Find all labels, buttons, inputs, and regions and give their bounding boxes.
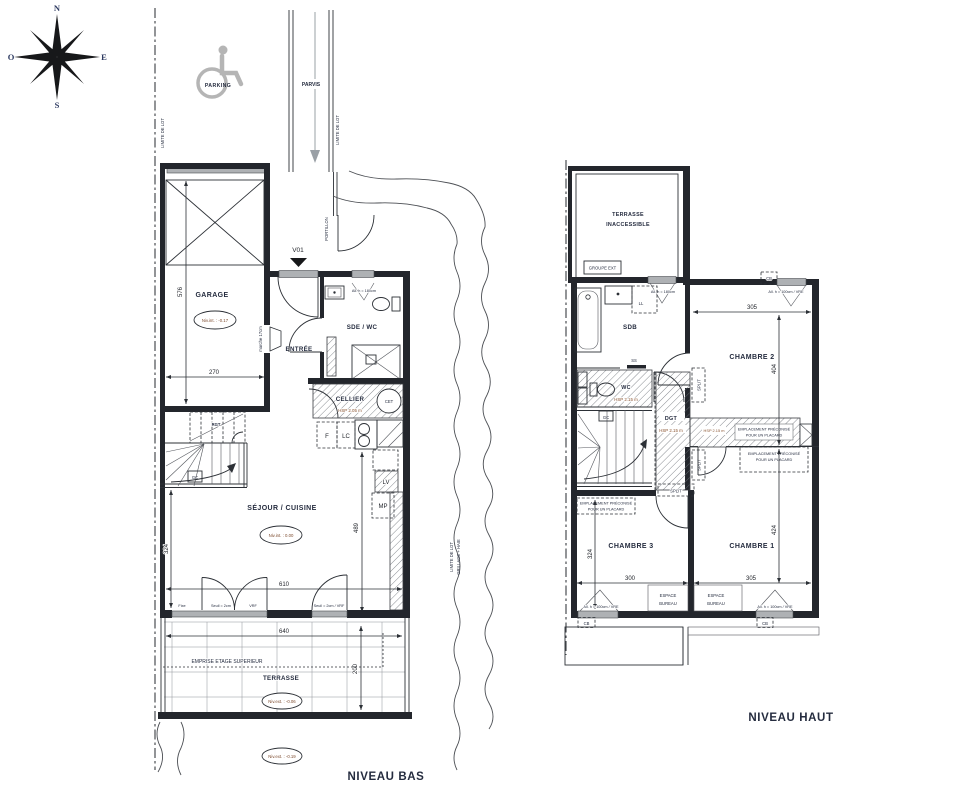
chambre1-window — [756, 611, 793, 618]
chambre3-window-label: All. h = 100cm / VRE — [583, 605, 619, 609]
gc-bas-label: GC — [192, 475, 198, 480]
sejour-room: SÉJOUR / CUISINE Niv.int. : 0.00 324 610 — [164, 490, 402, 608]
lc-label: LC — [342, 434, 350, 440]
water-heater-label: CET — [385, 399, 394, 404]
terrasse-level-label: Niv.ext. : -0.06 — [268, 699, 296, 704]
terrasse-area: 640 200 EMPRISE ETAGE SUPERIEUR TERRASSE… — [158, 618, 412, 719]
entry-area: ENTRÉE — [264, 271, 410, 354]
v01-label: V01 — [292, 247, 304, 254]
chambre1-window-label: All. h = 100cm / VRE — [757, 605, 793, 609]
plan-niveau-bas: GARAGE Niv.int. : -0.17 576 270 marche 1… — [158, 163, 424, 783]
fixe-label: Fixe — [178, 604, 185, 608]
wc-hsp-label: HSP 2.15 m — [614, 397, 638, 402]
marche-label: marche 17cm — [258, 326, 263, 352]
emprise-label: EMPRISE ETAGE SUPERIEUR — [191, 659, 262, 665]
placard-ch1-label-2: POUR UN PLACARD — [756, 458, 793, 462]
cb-ch2-label: CB — [766, 276, 772, 281]
split-label-2: SPLIT — [697, 459, 702, 471]
terrasse-height-dim: 200 — [353, 663, 359, 674]
towel-dryer — [627, 365, 646, 369]
ss-label: SS — [631, 358, 637, 363]
kitchen-units: F LC LV MP 489 — [317, 420, 403, 612]
limite-lot-parvis-label: LIMITE DE LOT — [335, 115, 340, 145]
floor-plan-drawing: N S E O PARVIS PARKING LIMITE DE LOT LIM… — [0, 0, 963, 800]
mp-label: MP — [379, 504, 388, 510]
limite-lot-left-label: LIMITE DE LOT — [160, 118, 165, 148]
cellier-hsp-label: HSP 2.05 m — [338, 408, 362, 413]
compass-north-label: N — [54, 3, 61, 13]
cellier-room: CET CELLIER HSP 2.05 m — [308, 378, 403, 418]
garage-width-dim: 270 — [209, 370, 220, 376]
sejour-window-2 — [312, 611, 347, 617]
placard-ch1-label-1: EMPLACEMENT PRÉCONISÉ — [748, 451, 801, 456]
toilet — [373, 298, 390, 311]
split-label-3: SPLIT — [670, 489, 682, 494]
dgt-area: DGT HSP 2.15 m — [655, 353, 690, 490]
cellier-label: CELLIER — [336, 396, 365, 403]
niveau-bas-title: NIVEAU BAS — [348, 771, 425, 783]
placard-ch3-label-1: EMPLACEMENT PRÉCONISÉ — [580, 501, 633, 506]
entry-step — [270, 327, 281, 351]
terrasse-label: TERRASSE — [263, 675, 299, 682]
espace-bureau: ESPACE BUREAU ESPACE BUREAU — [648, 585, 742, 611]
compass-rose: N S E O — [8, 3, 107, 110]
chambre3-height-dim: 324 — [588, 548, 594, 559]
chambre1-width-dim: 305 — [746, 576, 757, 582]
chambre2-label: CHAMBRE 2 — [729, 354, 774, 361]
groupe-ext-label: GROUPE EXT — [589, 266, 617, 271]
chambre3-label: CHAMBRE 3 — [608, 543, 653, 550]
sejour-height-dim: 324 — [164, 543, 170, 554]
terrasse-inaccessible-label-2: INACCESSIBLE — [606, 222, 650, 228]
staircase-haut: GC — [577, 407, 652, 487]
kitchen-height-dim: 489 — [354, 522, 360, 533]
sejour-level-label: Niv.int. : 0.00 — [269, 533, 294, 538]
technical-duct — [327, 337, 336, 376]
chambre2-window — [777, 279, 806, 286]
sde-window — [352, 271, 374, 278]
chambre2-height-dim: 404 — [772, 363, 778, 374]
chambre2-window-label: All. h = 100cm / VRE — [768, 290, 804, 294]
sejour-window-1 — [172, 611, 267, 617]
compass-east-label: E — [101, 52, 107, 62]
placard-ch3-label-2: POUR UN PLACARD — [588, 508, 625, 512]
rgt-storage — [190, 412, 245, 443]
rgt-label: RGT — [212, 422, 221, 427]
lv-label: LV — [383, 480, 390, 486]
portillon-gate — [334, 172, 375, 251]
chambre1-label: CHAMBRE 1 — [729, 543, 774, 550]
shower — [352, 345, 400, 379]
ground-level-label: Niv.ext. : -0.19 — [268, 754, 296, 759]
lot-boundary-hedge: LIMITE DE LOT GRILLAGE + HAIE — [157, 171, 493, 775]
chambre3-width-dim: 300 — [625, 576, 636, 582]
limite-lot-hedge-label-2: GRILLAGE + HAIE — [456, 539, 461, 575]
garage-level-label: Niv.int. : -0.17 — [202, 318, 229, 323]
portillon-label: PORTILLON — [324, 217, 329, 241]
terrasse-width-dim: 640 — [279, 629, 290, 635]
placard-ch3-box — [577, 498, 635, 514]
dgt-label: DGT — [665, 416, 678, 422]
parvis-label: PARVIS — [302, 82, 321, 88]
bureau3-label-1: ESPACE — [660, 593, 677, 598]
entry-marker-triangle — [290, 258, 307, 267]
sdb-label: SDB — [623, 324, 637, 331]
sdb-room: All. h = 180cm LL SDB SS — [575, 277, 676, 369]
seuil-label: Seuil = 2cm — [211, 604, 231, 608]
chambre1-height-dim: 424 — [772, 524, 778, 535]
chambre2-width-dim: 305 — [747, 305, 758, 311]
sdb-window-label: All. h = 180cm — [651, 290, 675, 294]
bureau1-label-1: ESPACE — [708, 593, 725, 598]
cb-ch1-label: CB — [762, 621, 768, 626]
chambre3-window — [578, 611, 618, 618]
compass-south-label: S — [55, 100, 60, 110]
wc-label: WC — [621, 385, 631, 391]
garage-height-dim: 576 — [178, 286, 184, 297]
sdb-window — [648, 277, 676, 284]
parking-label: PARKING — [205, 83, 231, 89]
dgt-hsp-label: HSP 2.15 m — [659, 428, 683, 433]
split-label-1: SPLIT — [697, 379, 702, 391]
gc-haut-label: GC — [603, 415, 609, 420]
sde-wc-label: SDE / WC — [347, 324, 378, 331]
lower-level-outline — [565, 627, 819, 665]
wheelchair-icon — [198, 46, 241, 98]
sejour-label: SÉJOUR / CUISINE — [247, 503, 316, 512]
cb-ch3-label: CB — [584, 621, 590, 626]
front-door-threshold — [279, 271, 318, 278]
compass-west-label: O — [8, 52, 15, 62]
placard-band-label-1: EMPLACEMENT PRÉCONISÉ — [738, 427, 791, 432]
terrasse-inaccessible: TERRASSE INACCESSIBLE GROUPE EXT — [568, 166, 690, 285]
vrf-label: VRF — [249, 604, 257, 608]
bureau3-label-2: BUREAU — [659, 601, 676, 606]
fridge-label: F — [325, 434, 329, 440]
limite-lot-hedge-label-1: LIMITE DE LOT — [449, 542, 454, 572]
band-hsp-label: HSP 2.15 m — [704, 428, 725, 433]
garage-room: GARAGE Niv.int. : -0.17 576 270 marche 1… — [160, 163, 270, 618]
placard-band-label-2: POUR UN PLACARD — [746, 434, 783, 438]
bureau1-label-2: BUREAU — [707, 601, 724, 606]
plan-niveau-haut: TERRASSE INACCESSIBLE GROUPE EXT All. h … — [565, 160, 834, 724]
wall-niche — [800, 424, 812, 446]
staircase-bas: RGT GC — [160, 412, 247, 488]
sejour-width-dim: 610 — [279, 582, 290, 588]
seuil-vrf-label: Seuil = 2cm / VRF — [314, 604, 345, 608]
niveau-haut-title: NIVEAU HAUT — [748, 712, 833, 724]
floor-plan-page: N S E O PARVIS PARKING LIMITE DE LOT LIM… — [0, 0, 963, 800]
chambre-3-room: CHAMBRE 3 324 300 All. h = 100cm / VRE C… — [577, 496, 688, 628]
sde-window-label: All. h = 180cm — [352, 289, 376, 293]
ll-label: LL — [639, 301, 644, 306]
terrasse-inaccessible-label-1: TERRASSE — [612, 212, 644, 218]
bathtub — [575, 288, 601, 352]
garage-label: GARAGE — [195, 292, 228, 299]
